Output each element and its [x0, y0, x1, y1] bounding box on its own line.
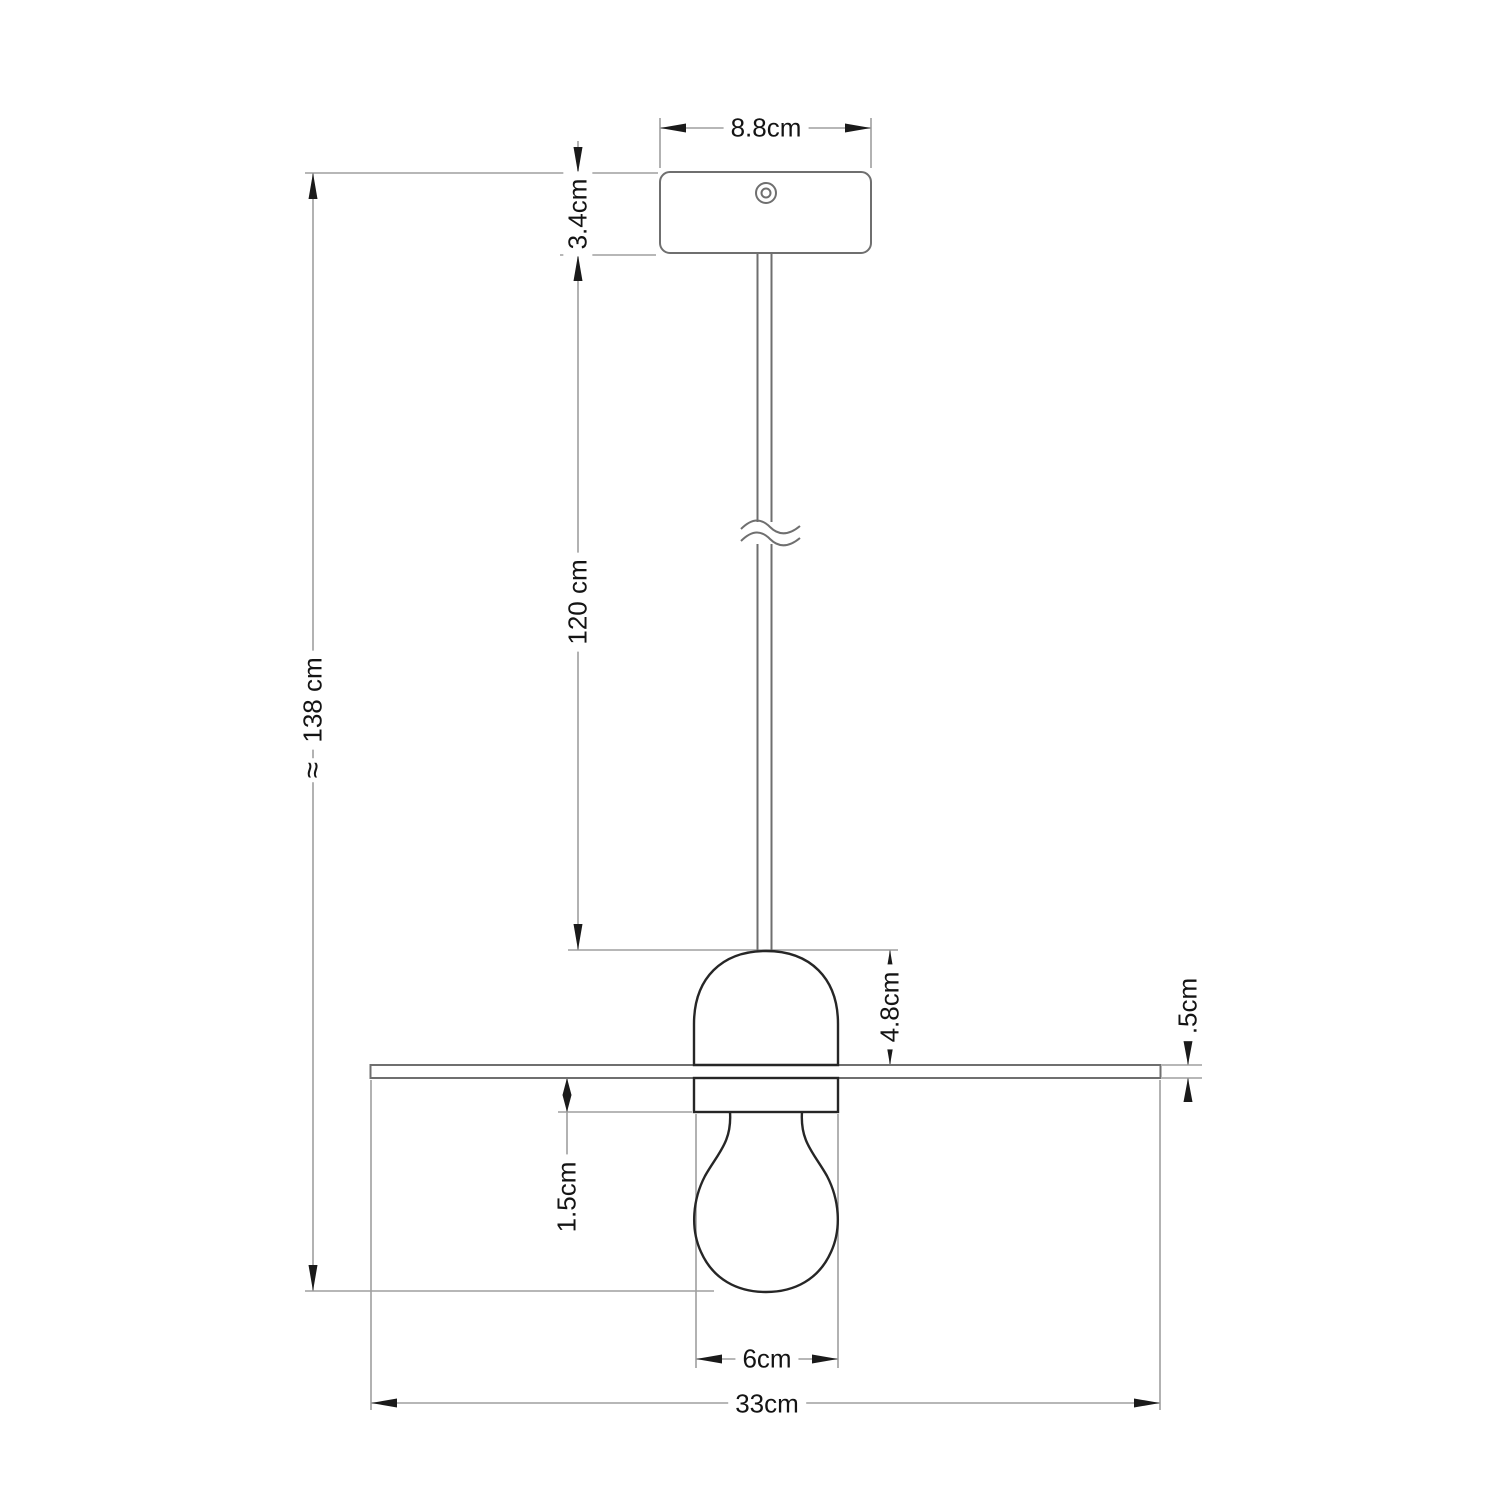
extension-lines — [305, 118, 1202, 1410]
dim-label-canopy-width: 8.8cm — [724, 113, 809, 142]
dim-label-cable-length: 120 cm — [563, 552, 592, 651]
arrow-up-icon — [1184, 1078, 1193, 1102]
arrow-down-icon — [309, 1265, 318, 1291]
arrow-right-icon — [1134, 1399, 1160, 1408]
lamp-holder — [694, 951, 838, 1065]
dimension-lines — [313, 128, 1188, 1403]
arrow-left-icon — [696, 1355, 722, 1364]
arrow-down-icon — [1184, 1041, 1193, 1065]
arrow-right-icon — [812, 1355, 838, 1364]
arrow-down-icon — [574, 924, 583, 950]
dimension-arrows — [309, 124, 1193, 1408]
ceiling-canopy — [660, 172, 871, 253]
technical-drawing-page: 8.8cm 3.4cm 120 cm 138 cm ≈ 4.8cm .5cm 1… — [0, 0, 1500, 1500]
power-cable — [758, 253, 772, 951]
cable-break-symbol — [741, 521, 800, 546]
arrow-down-icon — [563, 1095, 572, 1112]
arrow-left-icon — [660, 124, 686, 133]
dim-label-disc-diameter: 33cm — [728, 1389, 806, 1418]
dim-label-total-height: 138 cm — [298, 650, 327, 749]
arrow-up-icon — [563, 1078, 572, 1095]
dim-label-canopy-height: 3.4cm — [563, 172, 592, 257]
approx-symbol: ≈ — [296, 758, 330, 782]
arrow-right-icon — [845, 124, 871, 133]
light-bulb — [694, 1112, 838, 1292]
arrow-up-icon — [309, 173, 318, 199]
pendant-lamp-drawing — [0, 0, 1500, 1500]
dim-label-bulb-diameter: 6cm — [735, 1344, 798, 1373]
dim-label-disc-thickness: .5cm — [1173, 971, 1202, 1041]
socket-ring — [694, 1078, 838, 1112]
dim-label-holder-height: 4.8cm — [875, 965, 904, 1050]
arrow-down-icon — [574, 147, 583, 173]
arrow-up-icon — [574, 255, 583, 281]
disc-shade — [371, 1065, 1161, 1078]
dim-label-socket-below-disc: 1.5cm — [552, 1155, 581, 1240]
lamp-geometry — [371, 172, 1161, 1292]
arrow-left-icon — [371, 1399, 397, 1408]
